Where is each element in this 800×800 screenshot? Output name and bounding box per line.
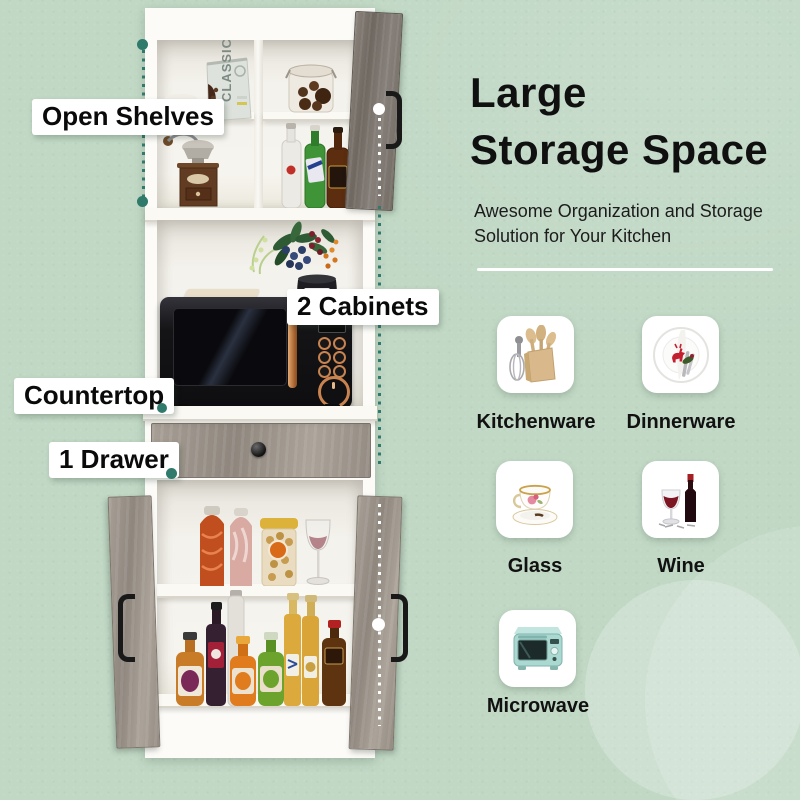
dinnerware-icon xyxy=(651,325,711,385)
feature-label-wine: Wine xyxy=(616,555,746,578)
microwave-button xyxy=(333,351,346,364)
red-thermos-bottle xyxy=(200,506,224,586)
amber-beer-bottle xyxy=(284,593,301,706)
feature-label-glass: Glass xyxy=(470,555,600,578)
storage-jar xyxy=(286,65,336,112)
feature-tile-kitchenware xyxy=(497,316,574,393)
shelf-items-lower xyxy=(172,590,348,707)
hutch-bottles xyxy=(282,123,349,208)
wine-icon xyxy=(651,470,711,530)
bottom-left-door-handle xyxy=(118,594,135,662)
feature-label-dinnerware: Dinnerware xyxy=(616,411,746,434)
dot-right-lower xyxy=(372,618,385,631)
watermark-circle-small xyxy=(585,580,800,800)
callout-countertop: Countertop xyxy=(14,378,174,414)
shelf-items-upper xyxy=(190,502,340,586)
wine-glass xyxy=(306,520,330,585)
feature-label-microwave: Microwave xyxy=(473,695,603,718)
countertop-board xyxy=(143,406,377,421)
flower-sprigs xyxy=(250,236,279,274)
green-soda-bottle xyxy=(258,632,284,706)
amber-beer-bottle-2 xyxy=(302,595,319,706)
promo-image: CLASSIC xyxy=(0,0,800,800)
bottom-right-door-handle xyxy=(391,594,408,662)
microwave-door-glass xyxy=(173,308,287,386)
dotted-line-right xyxy=(378,206,381,466)
feature-tile-dinnerware xyxy=(642,316,719,393)
kitchenware-icon xyxy=(506,325,566,385)
feature-tile-wine xyxy=(642,461,719,538)
brown-beer-bottle xyxy=(322,620,346,706)
coffee-grinder xyxy=(163,134,219,206)
dotted-line-right-lower-door xyxy=(378,504,381,726)
page-title: Large Storage Space xyxy=(470,64,800,178)
microwave-button xyxy=(318,337,331,350)
dot-countertop xyxy=(157,403,167,413)
pink-thermos-bottle xyxy=(230,508,252,586)
subtitle-line-1: Awesome Organization and Storage xyxy=(474,199,800,224)
pasta-jar xyxy=(260,518,298,586)
drawer-knob xyxy=(251,442,266,457)
dot-left-bottom xyxy=(137,196,148,207)
juice-bottle-purple xyxy=(176,632,204,706)
microwave-button xyxy=(333,337,346,350)
orange-flowers xyxy=(323,240,338,269)
callout-1-drawer: 1 Drawer xyxy=(49,442,179,478)
top-door-handle xyxy=(386,91,402,149)
dotted-line-right-door xyxy=(378,118,381,196)
feature-tile-glass xyxy=(496,461,573,538)
callout-open-shelves: Open Shelves xyxy=(32,99,224,135)
dot-drawer xyxy=(166,468,177,479)
subtitle-line-2: Solution for Your Kitchen xyxy=(474,224,800,249)
blue-berries xyxy=(282,246,311,270)
callout-countertop-label: Countertop xyxy=(24,380,164,410)
feature-tile-microwave xyxy=(499,610,576,687)
microwave-button xyxy=(318,351,331,364)
headline-line-1: Large xyxy=(470,64,800,121)
callout-2-cabinets: 2 Cabinets xyxy=(287,289,439,325)
callout-1-drawer-label: 1 Drawer xyxy=(59,444,169,474)
coffee-bag-text: CLASSIC xyxy=(219,40,234,102)
glass-icon xyxy=(505,470,565,530)
divider-line xyxy=(477,268,773,271)
dot-left-top xyxy=(137,39,148,50)
dot-right-top xyxy=(373,103,385,115)
feature-label-kitchenware: Kitchenware xyxy=(471,411,601,434)
subtitle: Awesome Organization and Storage Solutio… xyxy=(474,199,800,249)
dark-bottle-red-label xyxy=(206,602,226,706)
microwave-icon xyxy=(508,619,568,679)
callout-2-cabinets-label: 2 Cabinets xyxy=(297,291,429,321)
callout-open-shelves-label: Open Shelves xyxy=(42,101,214,131)
headline-line-2: Storage Space xyxy=(470,121,800,178)
